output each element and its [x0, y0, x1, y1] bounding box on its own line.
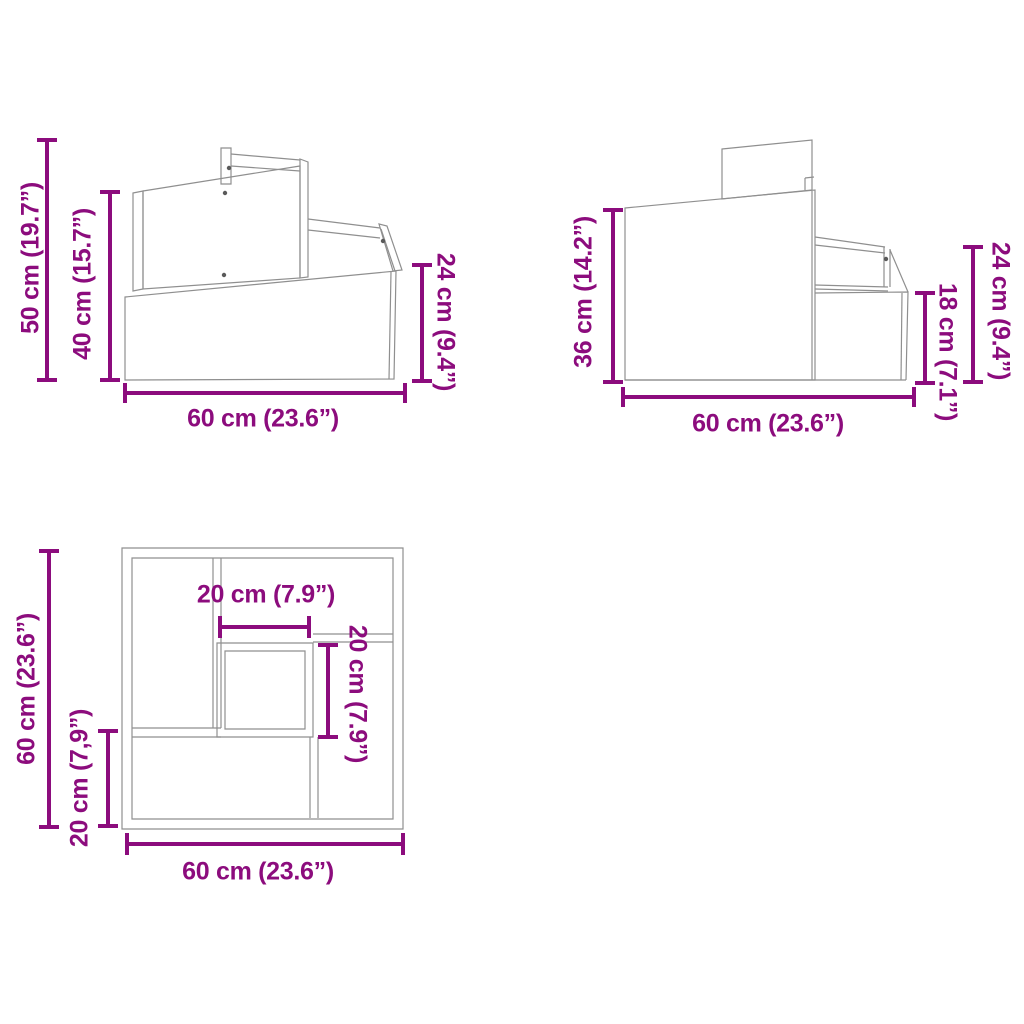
side-view-a-linework: [125, 148, 402, 380]
dim-label-top-width: 60 cm (23.6”): [182, 858, 334, 887]
dim-label-side-a-total-height: 50 cm (19.7”): [17, 182, 46, 334]
dim-label-top-depth: 60 cm (23.6”): [13, 613, 42, 765]
dim-label-side-a-width: 60 cm (23.6”): [187, 405, 339, 434]
side-view-b-screws: [884, 257, 888, 261]
dim-label-side-b-rail-height: 24 cm (9.4”): [986, 242, 1015, 380]
dim-label-side-b-front-height: 36 cm (14.2”): [570, 216, 599, 368]
dim-label-side-a-step-height: 24 cm (9.4”): [431, 253, 460, 391]
side-view-b-dimension-lines: [603, 210, 983, 407]
dim-label-side-b-step-height: 18 cm (7.1”): [933, 283, 962, 421]
dim-label-side-b-width: 60 cm (23.6”): [692, 410, 844, 439]
dim-label-side-a-panel-height: 40 cm (15.7”): [69, 208, 98, 360]
side-view-b-linework: [625, 140, 908, 380]
dim-label-top-lower-step-depth: 20 cm (7,9”): [66, 709, 95, 847]
dim-label-top-platform-depth: 20 cm (7.9”): [343, 625, 372, 763]
diagram-canvas: [0, 0, 1024, 1024]
dim-label-top-platform-width: 20 cm (7.9”): [197, 581, 335, 610]
side-view-a-screws: [222, 166, 385, 277]
product-dimension-diagram: 50 cm (19.7”) 40 cm (15.7”) 24 cm (9.4”)…: [0, 0, 1024, 1024]
